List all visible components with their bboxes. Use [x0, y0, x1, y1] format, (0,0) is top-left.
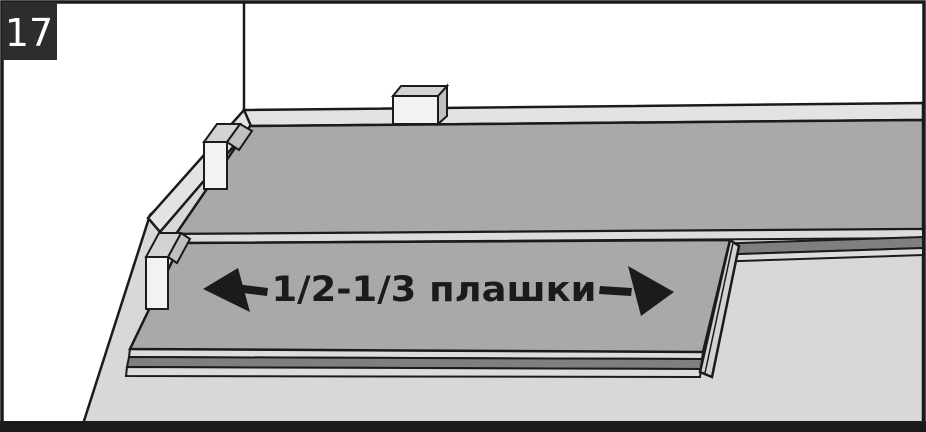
flooring-diagram: 1/2-1/3 плашки [0, 0, 926, 432]
plank-row-2: 1/2-1/3 плашки [126, 240, 739, 377]
annotation-label: 1/2-1/3 плашки [272, 270, 597, 310]
step-number: 17 [5, 11, 53, 55]
spacer2-front-face [146, 257, 168, 309]
plank2-front-band-light2 [126, 367, 701, 377]
plank1-top-surface [176, 120, 923, 234]
instruction-figure: 1/2-1/3 плашки [0, 0, 926, 432]
spacer3-top-face [393, 86, 447, 96]
step-badge: 17 [2, 2, 57, 60]
spacer1-front-face [204, 142, 227, 189]
spacer-block-back-wall [393, 86, 447, 124]
spacer3-front-face [393, 96, 438, 124]
